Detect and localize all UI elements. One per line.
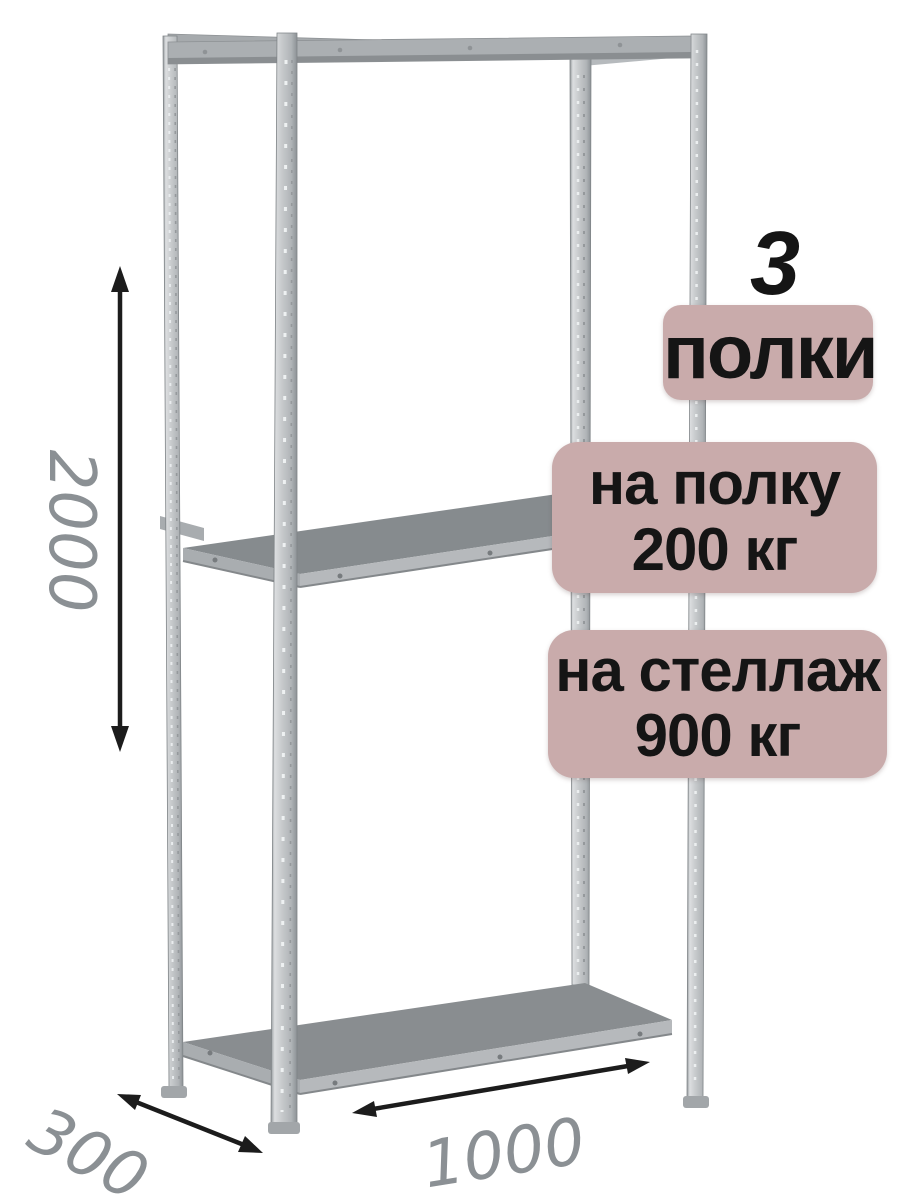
shelf-load-badge: на полку 200 кг xyxy=(552,442,877,593)
shelving-rack-illustration xyxy=(0,0,900,1200)
product-image: 2000 300 1000 3 полки на полку 200 кг на… xyxy=(0,0,900,1200)
shelf-count-badge-label: полки xyxy=(663,310,876,395)
rack-load-badge: на стеллаж 900 кг xyxy=(548,630,887,778)
shelf-count-value: 3 xyxy=(720,218,830,310)
height-dimension-arrow xyxy=(111,266,129,752)
height-dimension-label: 2000 xyxy=(31,371,111,691)
bottom-shelf xyxy=(183,983,672,1094)
rack-post-back-left xyxy=(161,36,187,1098)
rack-post-front-left xyxy=(268,33,300,1134)
shelf-count-badge: полки xyxy=(663,305,873,400)
shelf-load-line1: на полку xyxy=(552,451,877,517)
post-foot xyxy=(268,1122,300,1134)
post-foot xyxy=(161,1086,187,1098)
post-foot xyxy=(683,1096,709,1108)
rack-load-line1: на стеллаж xyxy=(548,638,887,703)
rack-load-line2: 900 кг xyxy=(548,703,887,768)
shelf-load-line2: 200 кг xyxy=(552,517,877,583)
